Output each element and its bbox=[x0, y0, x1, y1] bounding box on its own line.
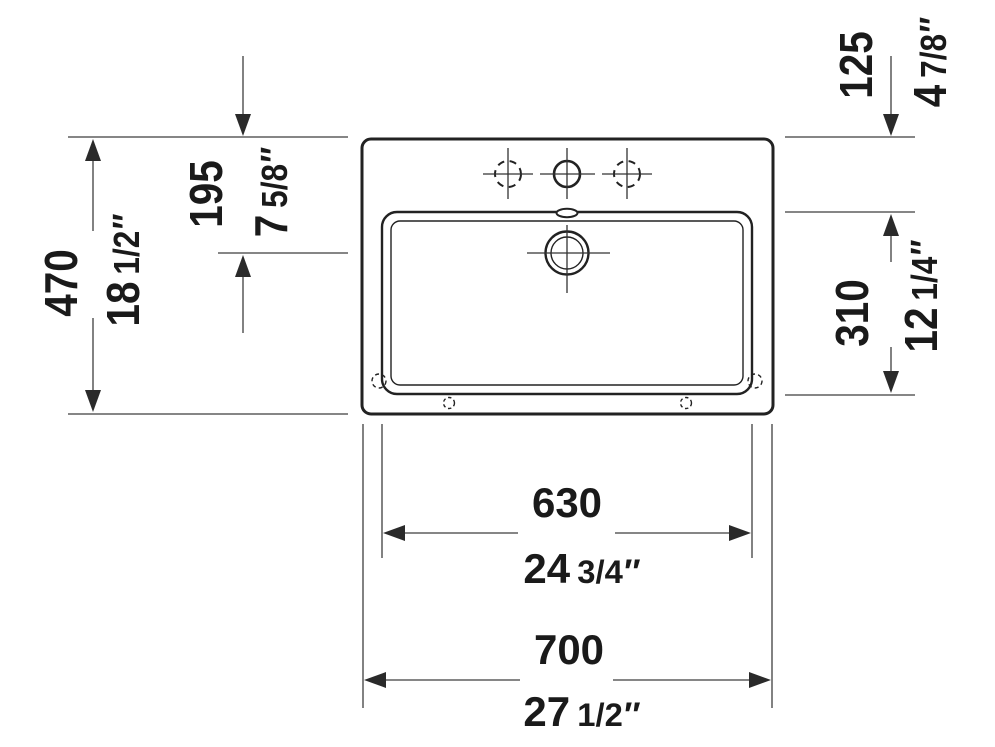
washbasin-technical-drawing: 470 181/2″ 195 75/8″ 125 47/8″ 310 121/4… bbox=[0, 0, 995, 747]
dim-700-inch-label: 271/2″ bbox=[523, 691, 640, 733]
dim-195-mm-label: 195 bbox=[183, 160, 229, 228]
arrowhead-down bbox=[85, 390, 101, 412]
inch-fraction: 5/8 bbox=[255, 164, 295, 208]
inch-fraction: 1/4 bbox=[905, 257, 945, 301]
dim-310-inch-label: 121/4″ bbox=[898, 239, 944, 352]
inch-fraction: 1/2 bbox=[577, 696, 623, 733]
inch-fraction: 3/4 bbox=[577, 553, 623, 590]
arrowhead-down bbox=[235, 114, 251, 136]
faucet-hole-crosshairs bbox=[483, 148, 652, 199]
arrowhead-right bbox=[749, 672, 771, 688]
inch-whole: 27 bbox=[523, 688, 570, 735]
inch-fraction: 7/8 bbox=[914, 34, 954, 78]
arrowhead-left bbox=[383, 525, 405, 541]
inch-mark: ″ bbox=[624, 696, 641, 734]
drawing-linework bbox=[0, 0, 995, 747]
inch-mark: ″ bbox=[105, 213, 147, 229]
arrowhead-down bbox=[883, 114, 899, 136]
inch-mark: ″ bbox=[624, 553, 641, 591]
inch-mark: ″ bbox=[253, 147, 295, 163]
inch-fraction: 1/2 bbox=[107, 231, 147, 275]
inch-whole: 24 bbox=[523, 545, 570, 592]
inch-whole: 12 bbox=[895, 308, 947, 353]
dim-125-mm-label: 125 bbox=[833, 31, 879, 99]
dim-195-inch-label: 75/8″ bbox=[248, 147, 294, 238]
inch-whole: 4 bbox=[904, 85, 956, 108]
faucet-holes-group bbox=[483, 148, 652, 199]
dim-630-mm-label: 630 bbox=[532, 482, 602, 524]
dim-310-mm-label: 310 bbox=[829, 279, 875, 347]
arrowhead-down bbox=[883, 371, 899, 393]
arrowhead-up bbox=[883, 214, 899, 236]
dim-470-inch-label: 181/2″ bbox=[100, 213, 146, 326]
arrowhead-left bbox=[364, 672, 386, 688]
overflow-slot bbox=[557, 209, 578, 217]
dim-630-inch-label: 243/4″ bbox=[523, 548, 640, 590]
sink-outline-group bbox=[362, 139, 773, 414]
arrowhead-up bbox=[235, 255, 251, 277]
inch-mark: ″ bbox=[912, 17, 954, 33]
dim-700-mm-label: 700 bbox=[534, 629, 604, 671]
arrowhead-right bbox=[729, 525, 751, 541]
dim-470-mm-label: 470 bbox=[38, 249, 84, 317]
inch-whole: 18 bbox=[97, 282, 149, 327]
inch-mark: ″ bbox=[903, 239, 945, 255]
arrowhead-up bbox=[85, 139, 101, 161]
inch-whole: 7 bbox=[245, 215, 297, 238]
dim-125-inch-label: 47/8″ bbox=[907, 17, 953, 108]
